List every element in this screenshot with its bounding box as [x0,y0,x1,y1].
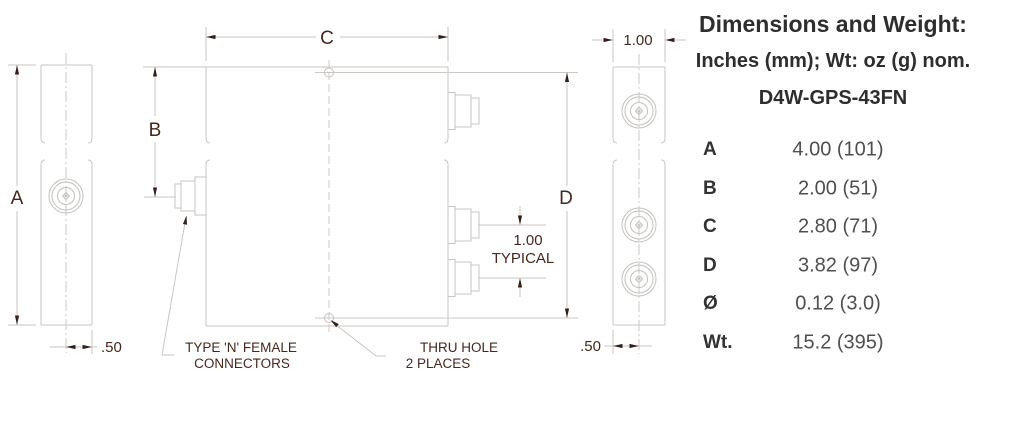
output-connector-profile [448,93,479,130]
row-label: B [703,178,717,200]
dimension-C: C [206,27,448,61]
panel-subtitle: Inches (mm); Wt: oz (g) nom. [656,50,1010,73]
table-row: Wt. 15.2 (395) [656,324,1010,363]
row-value: 0.12 (3.0) [736,293,940,316]
table-row: A 4.00 (101) [656,131,1010,170]
dim-label-A: A [11,188,24,209]
dim-label-typical-value: 1.00 [513,232,542,249]
dimension-left-offset: .50 [50,330,122,356]
dim-label-typical-word: TYPICAL [492,250,555,267]
output-connector-profile [448,260,479,297]
dim-label-B: B [149,120,162,141]
row-value: 4.00 (101) [736,139,940,162]
dimension-D: D [559,73,573,319]
hole-note-line1: THRU HOLE [420,340,498,355]
dimensions-panel: Dimensions and Weight: Inches (mm); Wt: … [656,0,1010,423]
dim-label-D: D [559,188,573,209]
row-value: 15.2 (395) [736,331,940,354]
table-row: Ø 0.12 (3.0) [656,285,1010,324]
dimension-typical-spacing: 1.00 TYPICAL [478,206,554,297]
model-number: D4W-GPS-43FN [656,87,1010,110]
dimension-A: A [8,65,36,325]
panel-title: Dimensions and Weight: [656,11,1010,38]
hole-note-line2: 2 PLACES [406,356,471,371]
row-value: 2.80 (71) [736,216,940,239]
outline-drawing-page: A .50 [0,0,1024,423]
row-label: D [703,255,717,277]
table-row: B 2.00 (51) [656,170,1010,209]
connector-callout: TYPE 'N' FEMALE CONNECTORS [162,216,297,372]
dim-label-right-offset: .50 [580,338,601,355]
dimension-table: A 4.00 (101) B 2.00 (51) C 2.80 (71) D 3… [656,131,1010,362]
input-connector-profile [175,177,206,215]
row-value: 3.82 (97) [736,254,940,277]
row-value: 2.00 (51) [736,177,940,200]
thru-hole-callout: THRU HOLE 2 PLACES [331,320,499,371]
dimension-drawing: A .50 [0,0,700,423]
output-connector-profile [448,207,479,244]
dim-label-right-width: 1.00 [623,32,652,49]
row-label: A [703,139,717,161]
table-row: D 3.82 (97) [656,247,1010,286]
dim-label-C: C [320,28,334,49]
row-label: C [703,216,717,238]
row-label: Ø [703,293,718,315]
front-view [175,60,578,332]
dimension-right-offset: .50 [580,330,652,355]
table-row: C 2.80 (71) [656,208,1010,247]
row-label: Wt. [703,332,733,354]
dim-label-left-offset: .50 [101,339,122,356]
left-side-view [41,53,92,353]
connector-note-line1: TYPE 'N' FEMALE [185,340,297,355]
connector-note-line2: CONNECTORS [194,356,290,371]
